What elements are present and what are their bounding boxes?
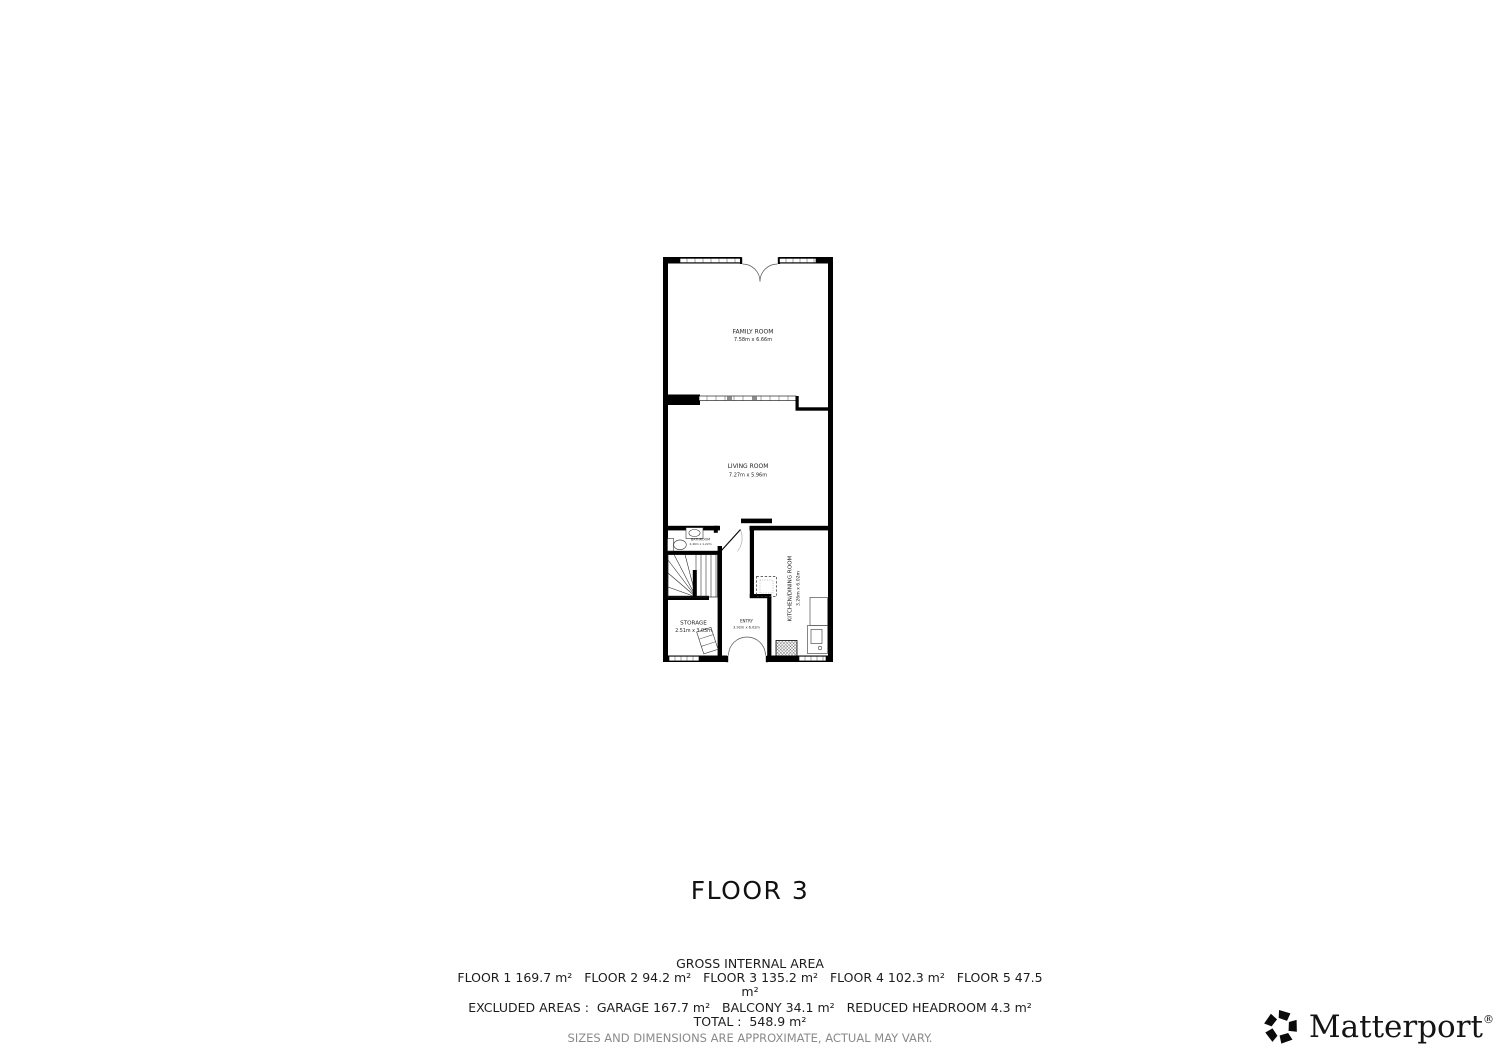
matterport-wordmark: Matterport® <box>1309 1012 1494 1043</box>
floorplan-page: { "floor_title": "FLOOR 3", "floorplan":… <box>0 0 1500 1061</box>
window-icon <box>799 656 826 661</box>
bathroom-door-icon <box>721 530 742 552</box>
family-living-divider <box>667 395 833 411</box>
kitchen-counter-icon <box>808 598 828 654</box>
window-icon <box>780 258 817 262</box>
bathroom-dims: 2.46m x 1.22m <box>689 542 711 546</box>
french-door-icon <box>740 256 780 282</box>
entry-label: ENTRY <box>740 619 753 624</box>
window-icon <box>680 258 741 262</box>
room-living-room: LIVING ROOM 7.27m x 5.96m <box>728 463 769 479</box>
room-storage: STORAGE 2.51m x 3.03m <box>675 621 712 635</box>
matterport-logo-icon <box>1262 1002 1300 1052</box>
kitchen-dining-label: KITCHEN/DINING ROOM <box>788 555 794 621</box>
floor-title: FLOOR 3 <box>0 876 1500 905</box>
storage-label: STORAGE <box>680 621 707 627</box>
family-room-label: FAMILY ROOM <box>733 329 774 336</box>
staircase-icon <box>668 555 718 598</box>
dashed-appliance-icon <box>757 577 777 597</box>
window-icon <box>669 656 699 661</box>
toilet-icon <box>668 539 687 552</box>
floor-areas-overflow: m² <box>0 985 1500 999</box>
kitchen-dining-dims: 3.26m x 6.02m <box>796 570 802 606</box>
matterport-logo: Matterport® <box>1262 1000 1494 1054</box>
stair-wall <box>693 570 697 597</box>
living-room-dims: 7.27m x 5.96m <box>729 473 767 479</box>
gross-internal-area-heading: GROSS INTERNAL AREA <box>0 957 1500 971</box>
entry-double-door-icon <box>726 637 768 664</box>
entry-dims: 3.92m x 6.02m <box>733 626 760 630</box>
room-family-room: FAMILY ROOM 7.58m x 6.66m <box>733 329 774 344</box>
vent-grate-icon <box>776 641 797 657</box>
outer-walls <box>663 257 833 662</box>
floor-areas-line: FLOOR 1 169.7 m² FLOOR 2 94.2 m² FLOOR 3… <box>0 971 1500 985</box>
registered-mark: ® <box>1483 1013 1494 1026</box>
storage-dims: 2.51m x 3.03m <box>675 628 712 634</box>
room-entry: ENTRY 3.92m x 6.02m <box>733 619 760 630</box>
floor-plan: FAMILY ROOM 7.58m x 6.66m LIVING ROOM 7.… <box>660 255 835 665</box>
living-room-label: LIVING ROOM <box>728 463 769 470</box>
room-bathroom: BATHROOM 2.46m x 1.22m <box>689 538 711 546</box>
family-room-dims: 7.58m x 6.66m <box>734 337 772 343</box>
matterport-name: Matterport <box>1309 1009 1483 1045</box>
room-kitchen-dining: KITCHEN/DINING ROOM 3.26m x 6.02m <box>788 555 802 621</box>
